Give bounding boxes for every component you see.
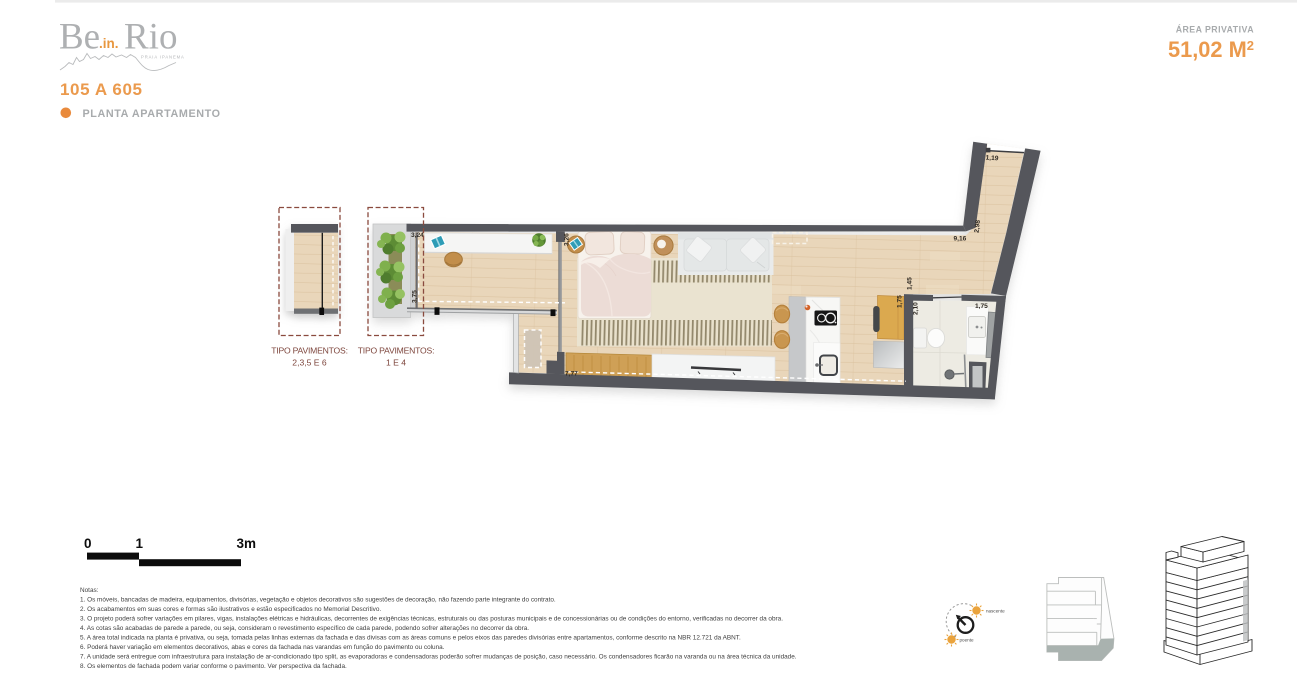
- svg-text:7. A unidade será entregue com: 7. A unidade será entregue com infraestr…: [80, 654, 797, 661]
- svg-text:4. As cotas são acabadas de pa: 4. As cotas são acabadas de parede a par…: [80, 625, 529, 632]
- svg-text:PLANTA APARTAMENTO: PLANTA APARTAMENTO: [83, 108, 221, 120]
- svg-text:TIPO PAVIMENTOS:: TIPO PAVIMENTOS:: [271, 346, 348, 356]
- svg-text:1,19: 1,19: [985, 155, 999, 163]
- svg-text:105 A 605: 105 A 605: [60, 80, 143, 99]
- svg-text:9,16: 9,16: [954, 236, 967, 243]
- svg-text:Notas:: Notas:: [80, 587, 99, 594]
- svg-text:1: 1: [136, 536, 144, 551]
- svg-text:6. Poderá haver variação em el: 6. Poderá haver variação em elementos de…: [80, 644, 445, 651]
- svg-text:2,3,5 E 6: 2,3,5 E 6: [292, 358, 327, 368]
- svg-text:7,77: 7,77: [565, 371, 578, 378]
- svg-text:51,02 M2: 51,02 M2: [1168, 37, 1254, 62]
- svg-text:2. Os acabamentos em suas core: 2. Os acabamentos em suas cores e formas…: [80, 606, 381, 613]
- svg-text:ÁREA PRIVATIVA: ÁREA PRIVATIVA: [1176, 25, 1255, 35]
- svg-text:2,10: 2,10: [913, 302, 920, 315]
- svg-text:3m: 3m: [237, 536, 257, 551]
- svg-text:1. Os móveis, bancadas de made: 1. Os móveis, bancadas de madeira, equip…: [80, 597, 556, 604]
- svg-text:Be: Be: [59, 17, 100, 58]
- svg-text:3,26: 3,26: [564, 233, 571, 246]
- svg-text:Rio: Rio: [124, 17, 177, 58]
- svg-text:1,75: 1,75: [897, 295, 904, 308]
- svg-text:.in.: .in.: [99, 36, 119, 51]
- svg-text:0: 0: [84, 536, 92, 551]
- svg-text:1 E 4: 1 E 4: [386, 358, 406, 368]
- svg-text:nascente: nascente: [986, 609, 1005, 614]
- svg-text:3,24: 3,24: [411, 232, 424, 239]
- svg-text:poente: poente: [960, 638, 974, 643]
- svg-text:TIPO PAVIMENTOS:: TIPO PAVIMENTOS:: [358, 346, 435, 356]
- svg-text:8. Os elementos de fachada pod: 8. Os elementos de fachada podem variar …: [80, 663, 347, 670]
- svg-text:PRAIA IPANEMA: PRAIA IPANEMA: [141, 55, 185, 60]
- svg-text:1,75: 1,75: [975, 303, 988, 310]
- svg-text:1,45: 1,45: [907, 277, 914, 290]
- svg-text:3. O projeto poderá sofrer var: 3. O projeto poderá sofrer variações em …: [80, 616, 783, 623]
- svg-text:3,75: 3,75: [412, 290, 419, 303]
- svg-text:5. A área total indicada na pl: 5. A área total indicada na planta é pri…: [80, 635, 741, 642]
